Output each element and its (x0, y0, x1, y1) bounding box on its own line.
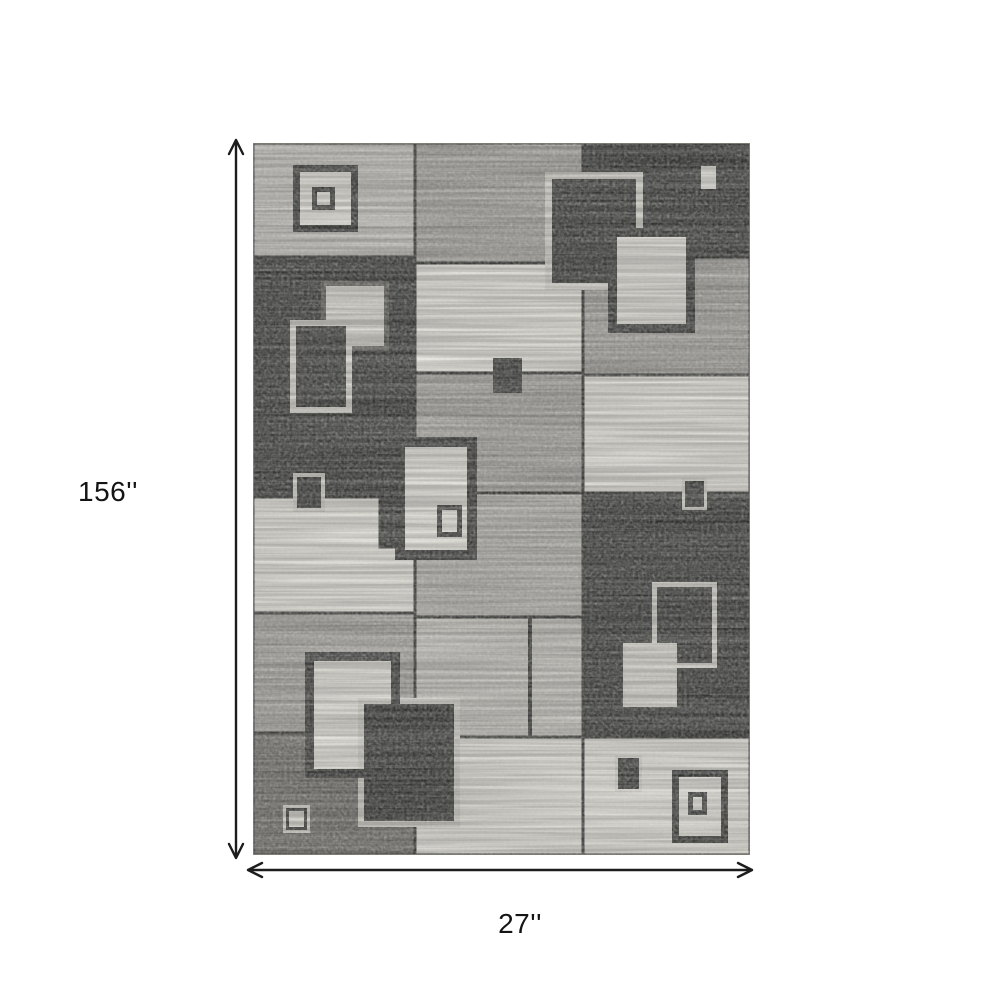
width-dimension-label: 27'' (450, 908, 590, 940)
height-dimension-label: 156'' (38, 476, 178, 508)
rug-texture-light-streaks (253, 143, 750, 855)
height-arrow (229, 140, 243, 858)
rug-image (253, 143, 750, 855)
width-arrow (248, 863, 752, 877)
product-dimension-diagram: 156'' 27'' (0, 0, 1000, 1000)
